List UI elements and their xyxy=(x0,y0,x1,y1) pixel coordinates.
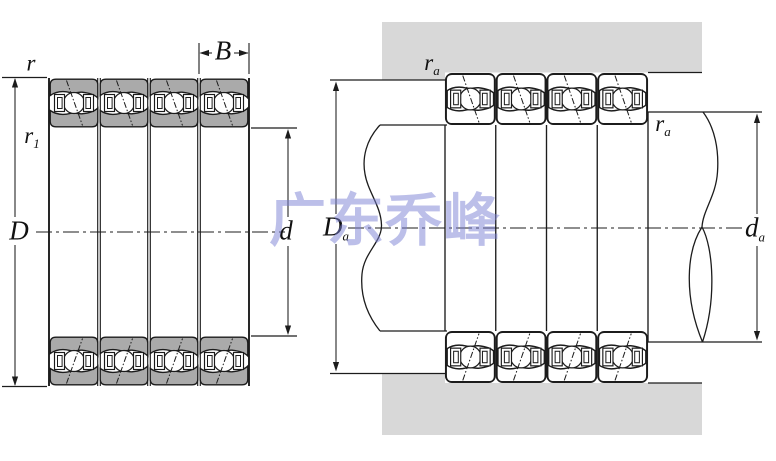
arrowhead xyxy=(200,50,210,56)
bearing-unit xyxy=(100,337,148,385)
arrowhead xyxy=(333,362,339,372)
dim-label-Da: Da xyxy=(323,214,349,243)
arrowhead xyxy=(239,50,249,56)
bearing-unit xyxy=(548,74,596,124)
bearing-unit xyxy=(497,74,545,124)
left-view-cross-section xyxy=(2,43,297,387)
arrowhead xyxy=(285,129,291,139)
bearing-drawing: r r1 B D d Da da ra ra 广东乔峰 xyxy=(0,0,776,461)
arrowhead xyxy=(12,377,18,387)
dim-label-r: r xyxy=(27,52,36,75)
bearing-unit xyxy=(200,79,248,127)
dim-label-ra-left: ra xyxy=(424,51,439,77)
bearing-unit xyxy=(497,332,545,382)
technical-drawing-canvas xyxy=(0,0,776,461)
dim-label-d: d xyxy=(279,218,293,245)
arrowhead xyxy=(12,78,18,88)
dim-label-ra-right: ra xyxy=(655,112,670,138)
bearing-unit xyxy=(446,332,494,382)
arrowhead xyxy=(285,326,291,336)
bearing-unit xyxy=(548,332,596,382)
dim-label-da: da xyxy=(745,215,765,244)
arrowhead xyxy=(754,331,760,341)
arrowhead xyxy=(333,82,339,92)
bearing-unit xyxy=(446,74,494,124)
right-view-mounted-section xyxy=(330,22,762,435)
dim-label-B: B xyxy=(215,38,232,65)
bearing-unit xyxy=(200,337,248,385)
dim-label-r1: r1 xyxy=(24,124,39,150)
bearing-unit xyxy=(150,337,198,385)
shaft-break-right xyxy=(689,112,718,342)
shaft xyxy=(362,112,762,342)
bearing-unit xyxy=(100,79,148,127)
bearing-unit xyxy=(50,79,98,127)
bearing-unit xyxy=(598,74,646,124)
dim-label-D: D xyxy=(9,218,29,245)
bearing-unit xyxy=(50,337,98,385)
housing-section-top xyxy=(330,22,702,80)
bearing-unit xyxy=(150,79,198,127)
arrowhead xyxy=(754,114,760,124)
bearing-unit xyxy=(598,332,646,382)
